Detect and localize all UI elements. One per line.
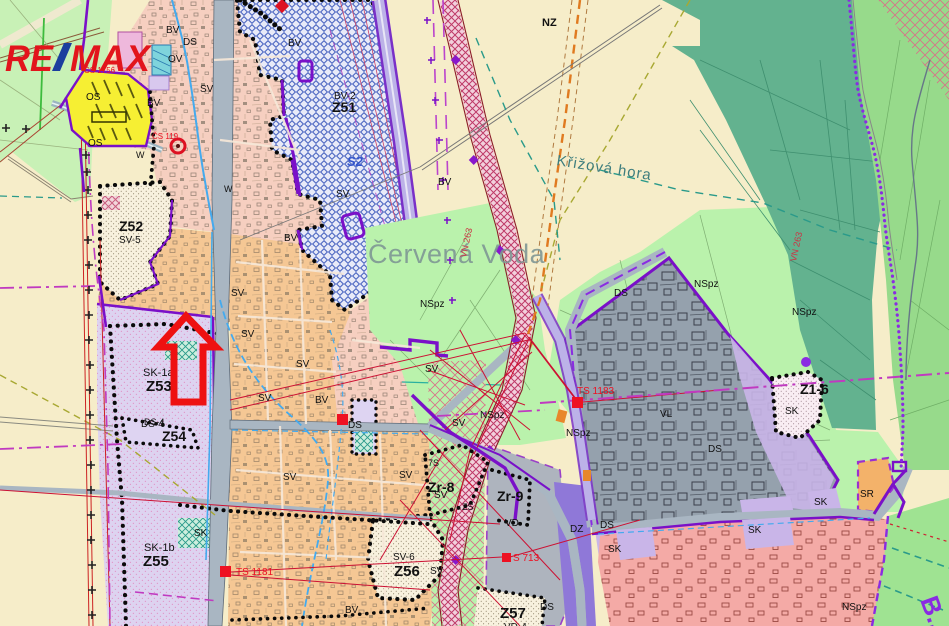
svg-text:S2: S2 (347, 154, 364, 169)
svg-text:SV: SV (283, 472, 297, 483)
svg-text:SV: SV (241, 329, 255, 340)
svg-text:DZ: DZ (570, 524, 583, 535)
svg-text:OS: OS (88, 138, 103, 149)
svg-text:NSpz: NSpz (792, 307, 816, 318)
svg-text:BV: BV (345, 605, 359, 616)
svg-text:SV: SV (200, 84, 214, 95)
svg-text:SV-6: SV-6 (393, 552, 415, 563)
svg-text:Z55: Z55 (143, 553, 169, 570)
svg-text:DS: DS (348, 420, 362, 431)
svg-text:SV: SV (399, 470, 413, 481)
svg-text:OS: OS (86, 92, 101, 103)
svg-text:SK: SK (814, 497, 828, 508)
svg-text:SV: SV (430, 566, 444, 577)
svg-text:BV: BV (284, 233, 298, 244)
svg-text:NSpz: NSpz (694, 279, 718, 290)
svg-text:BV: BV (288, 38, 302, 49)
svg-text:Z56: Z56 (394, 563, 420, 580)
svg-text:DS: DS (183, 37, 197, 48)
svg-text:NSpz: NSpz (480, 410, 504, 421)
svg-text:S 713: S 713 (513, 553, 540, 564)
svg-text:SV: SV (231, 288, 245, 299)
svg-text:SV: SV (425, 364, 439, 375)
svg-text:SR: SR (860, 489, 874, 500)
svg-text:ZS: ZS (462, 502, 474, 512)
svg-text:SV: SV (434, 490, 448, 501)
svg-text:DS: DS (540, 602, 554, 613)
svg-text:SV: SV (336, 189, 350, 200)
svg-text:BV: BV (438, 177, 452, 188)
svg-text:DS-4: DS-4 (144, 417, 165, 427)
svg-text:RE: RE (5, 38, 54, 79)
svg-text:MAX: MAX (70, 38, 152, 79)
svg-text:Z51: Z51 (332, 99, 356, 115)
svg-text:Z57: Z57 (500, 605, 526, 622)
svg-text:Z52: Z52 (119, 218, 143, 234)
svg-text:W: W (136, 150, 145, 160)
svg-text:DS: DS (708, 444, 722, 455)
svg-text:VD-4: VD-4 (504, 622, 527, 626)
svg-text:TS 1181: TS 1181 (236, 567, 273, 578)
svg-text:NSpz: NSpz (842, 602, 866, 613)
svg-text:BV: BV (315, 395, 329, 406)
svg-text:Z1-6: Z1-6 (800, 381, 829, 397)
svg-text:DS: DS (600, 520, 614, 531)
svg-text:NSpz: NSpz (420, 299, 444, 310)
svg-text:BV: BV (166, 25, 180, 36)
svg-text:SV: SV (296, 359, 310, 370)
svg-text:BV: BV (147, 98, 161, 109)
svg-text:SK: SK (194, 528, 208, 539)
svg-text:DS: DS (614, 288, 628, 299)
svg-text:7S: 7S (428, 458, 439, 468)
svg-text:NSpz: NSpz (566, 428, 590, 439)
svg-text:VD: VD (505, 518, 519, 529)
svg-text:VL: VL (660, 409, 673, 420)
svg-text:SK: SK (608, 544, 622, 555)
svg-text:SK: SK (785, 406, 799, 417)
svg-text:NZ: NZ (542, 17, 557, 29)
svg-text:Červená Voda: Červená Voda (368, 238, 546, 269)
svg-text:Z53: Z53 (146, 378, 172, 395)
svg-text:SV: SV (452, 418, 466, 429)
svg-text:SK: SK (748, 525, 762, 536)
svg-text:OV: OV (168, 54, 183, 65)
svg-text:Zr-9: Zr-9 (497, 488, 524, 504)
svg-text:W: W (224, 184, 233, 194)
svg-text:SV-5: SV-5 (119, 235, 141, 246)
svg-text:SV: SV (258, 393, 272, 404)
svg-text:Z54: Z54 (162, 428, 186, 444)
svg-text:ČS 119: ČS 119 (152, 132, 179, 141)
svg-text:TS 1183: TS 1183 (577, 386, 614, 397)
